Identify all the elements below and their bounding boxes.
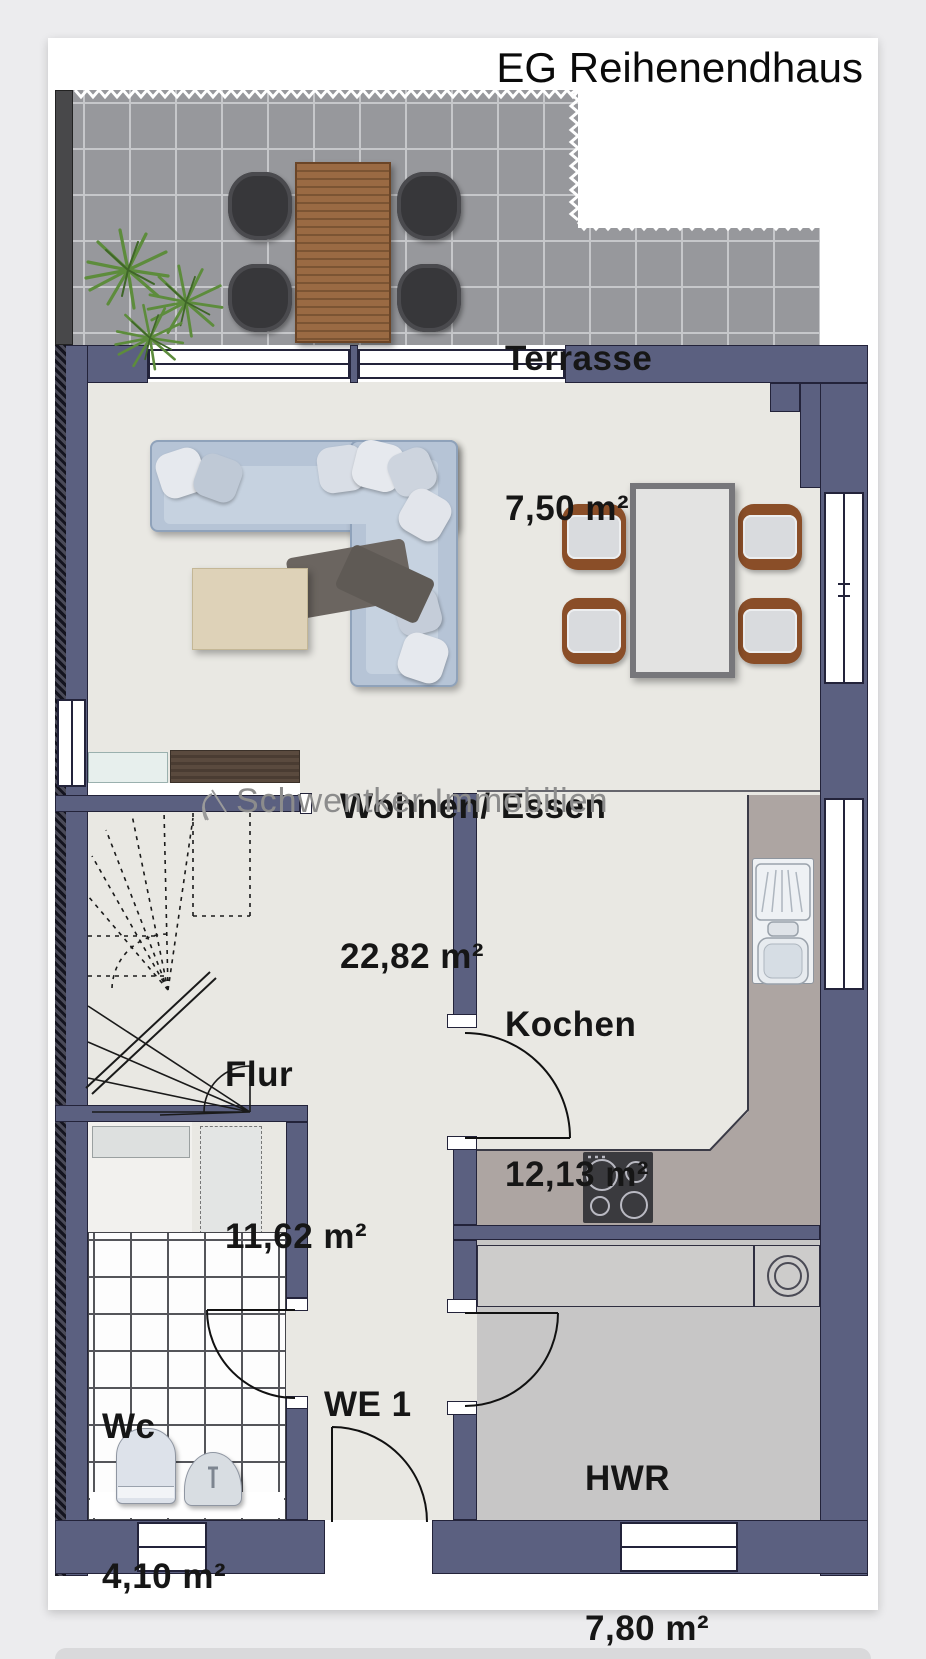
room-area: 7,80 m² (585, 1604, 709, 1654)
watermark-logo-icon (203, 790, 226, 820)
room-area: 12,13 m² (505, 1150, 649, 1200)
room-area: 11,62 m² (225, 1210, 367, 1264)
watermark: Schwentker Immobilien (236, 782, 608, 821)
room-name: Wc (102, 1402, 226, 1452)
room-name: Terrasse (505, 334, 652, 384)
sink-icon (756, 864, 810, 984)
room-label-wc: Wc 4,10 m² (102, 1302, 226, 1659)
room-name: Kochen (505, 1000, 649, 1050)
room-name: Flur (225, 1048, 367, 1102)
floorplan-image: EG Reihenendhaus Terrasse 7,50 m² Wohnen… (0, 0, 926, 1659)
plant-icon (116, 305, 183, 369)
room-label-flur: Flur 11,62 m² (225, 940, 367, 1372)
door-arc-entrance (332, 1427, 427, 1522)
entrance-label: WE 1 (324, 1380, 412, 1430)
plant-icon (148, 266, 222, 336)
plan-title: EG Reihenendhaus (0, 44, 863, 92)
room-label-terrasse: Terrasse 7,50 m² (505, 234, 652, 634)
room-name: HWR (585, 1454, 709, 1504)
washing-machine-icon (768, 1256, 808, 1296)
zigzag-notch-bottom (578, 222, 818, 229)
room-area: 4,10 m² (102, 1552, 226, 1602)
room-label-kochen: Kochen 12,13 m² (505, 900, 649, 1300)
room-label-hwr: HWR 7,80 m² (585, 1354, 709, 1659)
room-area: 7,50 m² (505, 484, 652, 534)
door-arc-hwr (465, 1313, 558, 1406)
